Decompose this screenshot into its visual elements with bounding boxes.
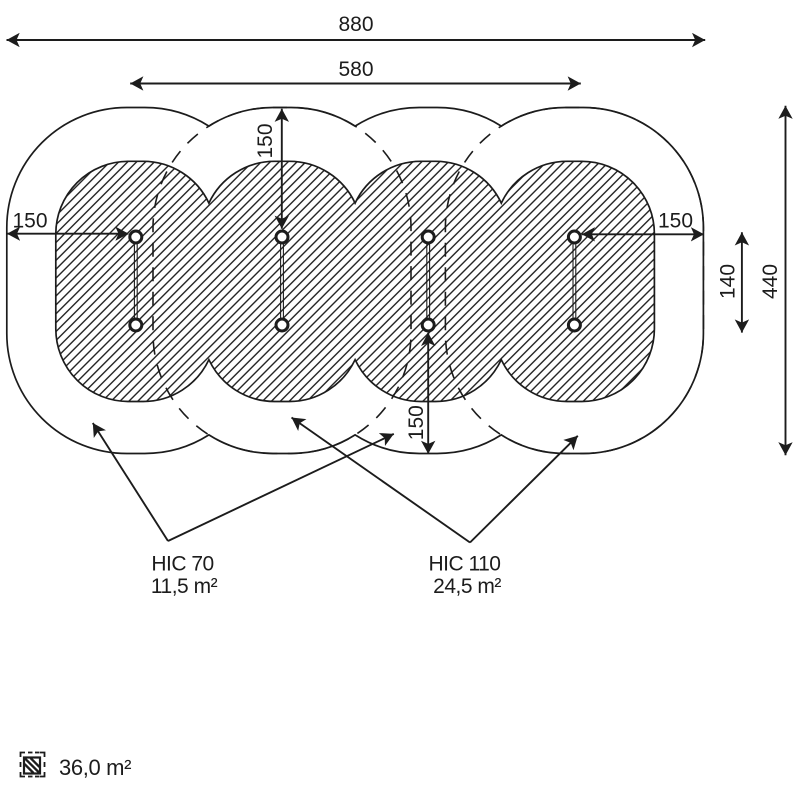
svg-text:150: 150 <box>405 405 428 440</box>
svg-text:24,5 m²: 24,5 m² <box>433 575 501 598</box>
svg-text:36,0 m²: 36,0 m² <box>59 755 131 780</box>
svg-text:880: 880 <box>338 13 373 36</box>
svg-text:11,5 m²: 11,5 m² <box>151 575 218 598</box>
svg-text:150: 150 <box>254 123 277 158</box>
svg-text:HIC 110: HIC 110 <box>429 553 501 576</box>
svg-text:580: 580 <box>338 58 373 81</box>
svg-text:150: 150 <box>12 210 47 233</box>
svg-text:HIC 70: HIC 70 <box>151 553 213 576</box>
svg-text:150: 150 <box>658 210 693 233</box>
svg-text:440: 440 <box>759 264 782 299</box>
svg-text:140: 140 <box>717 264 740 299</box>
